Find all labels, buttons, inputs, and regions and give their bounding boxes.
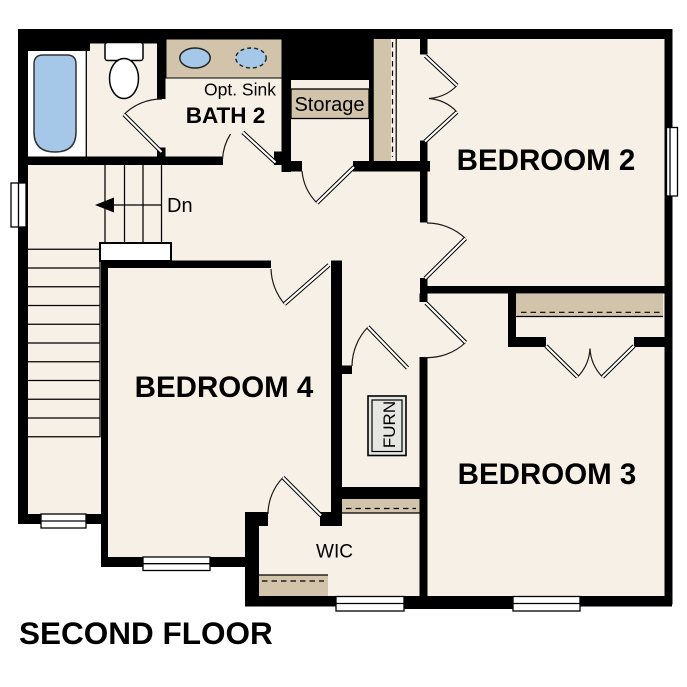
svg-text:BEDROOM 2: BEDROOM 2: [457, 144, 636, 177]
svg-text:Storage: Storage: [294, 94, 364, 116]
svg-text:BATH 2: BATH 2: [186, 103, 266, 128]
svg-text:FURN: FURN: [380, 401, 399, 448]
svg-text:WIC: WIC: [316, 542, 353, 563]
svg-text:Opt. Sink: Opt. Sink: [204, 80, 276, 100]
svg-text:BEDROOM 4: BEDROOM 4: [135, 371, 314, 404]
svg-text:SECOND FLOOR: SECOND FLOOR: [19, 615, 273, 651]
svg-text:Dn: Dn: [167, 195, 193, 217]
svg-text:BEDROOM 3: BEDROOM 3: [458, 458, 637, 491]
